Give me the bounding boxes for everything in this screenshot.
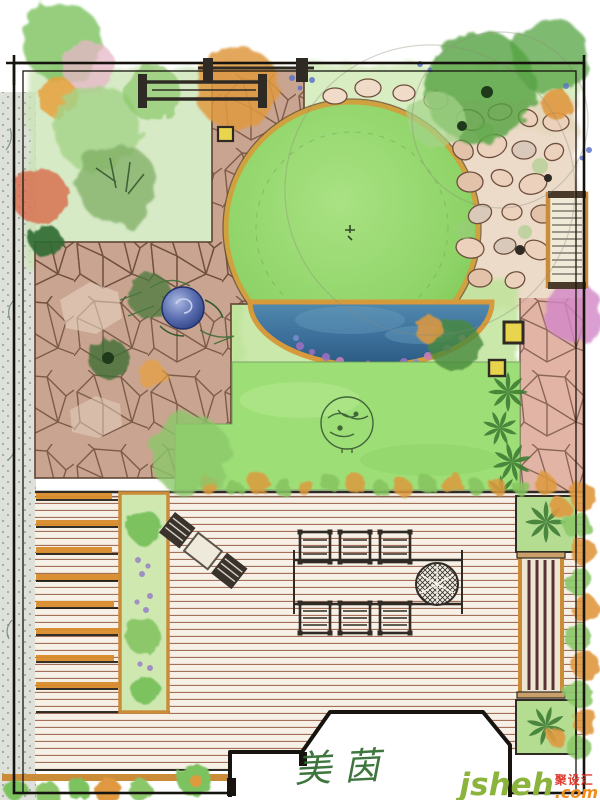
big-tree-ne-2 — [513, 19, 589, 95]
deck-bench-east — [517, 552, 565, 698]
watermark: jsheh 聚设汇 .com — [460, 772, 598, 800]
orange-accent-ne — [541, 89, 571, 119]
garden-lamp-north — [218, 127, 233, 141]
planter-strip — [120, 493, 168, 712]
red-tree-west — [12, 168, 68, 224]
deck-planter-south — [516, 700, 576, 754]
garden-plan-canvas: 美茵 jsheh 聚设汇 .com — [0, 0, 600, 800]
watermark-brand: jsheh — [460, 772, 554, 800]
garden-bench-east — [548, 191, 586, 289]
light-tree-ne — [409, 92, 465, 148]
shrub-mass-nw — [78, 145, 158, 225]
fire-pit — [416, 563, 458, 605]
dark-evergreen-west — [30, 225, 62, 257]
garden-plan-drawing — [0, 0, 600, 800]
designer-signature: 美茵 — [293, 733, 426, 794]
watermark-domain: .com — [555, 786, 598, 800]
green-tree-nw — [124, 64, 180, 120]
garden-lamp-east-1 — [504, 322, 523, 343]
green-tree-mid — [150, 415, 230, 495]
garden-lamp-east-2 — [489, 360, 505, 376]
